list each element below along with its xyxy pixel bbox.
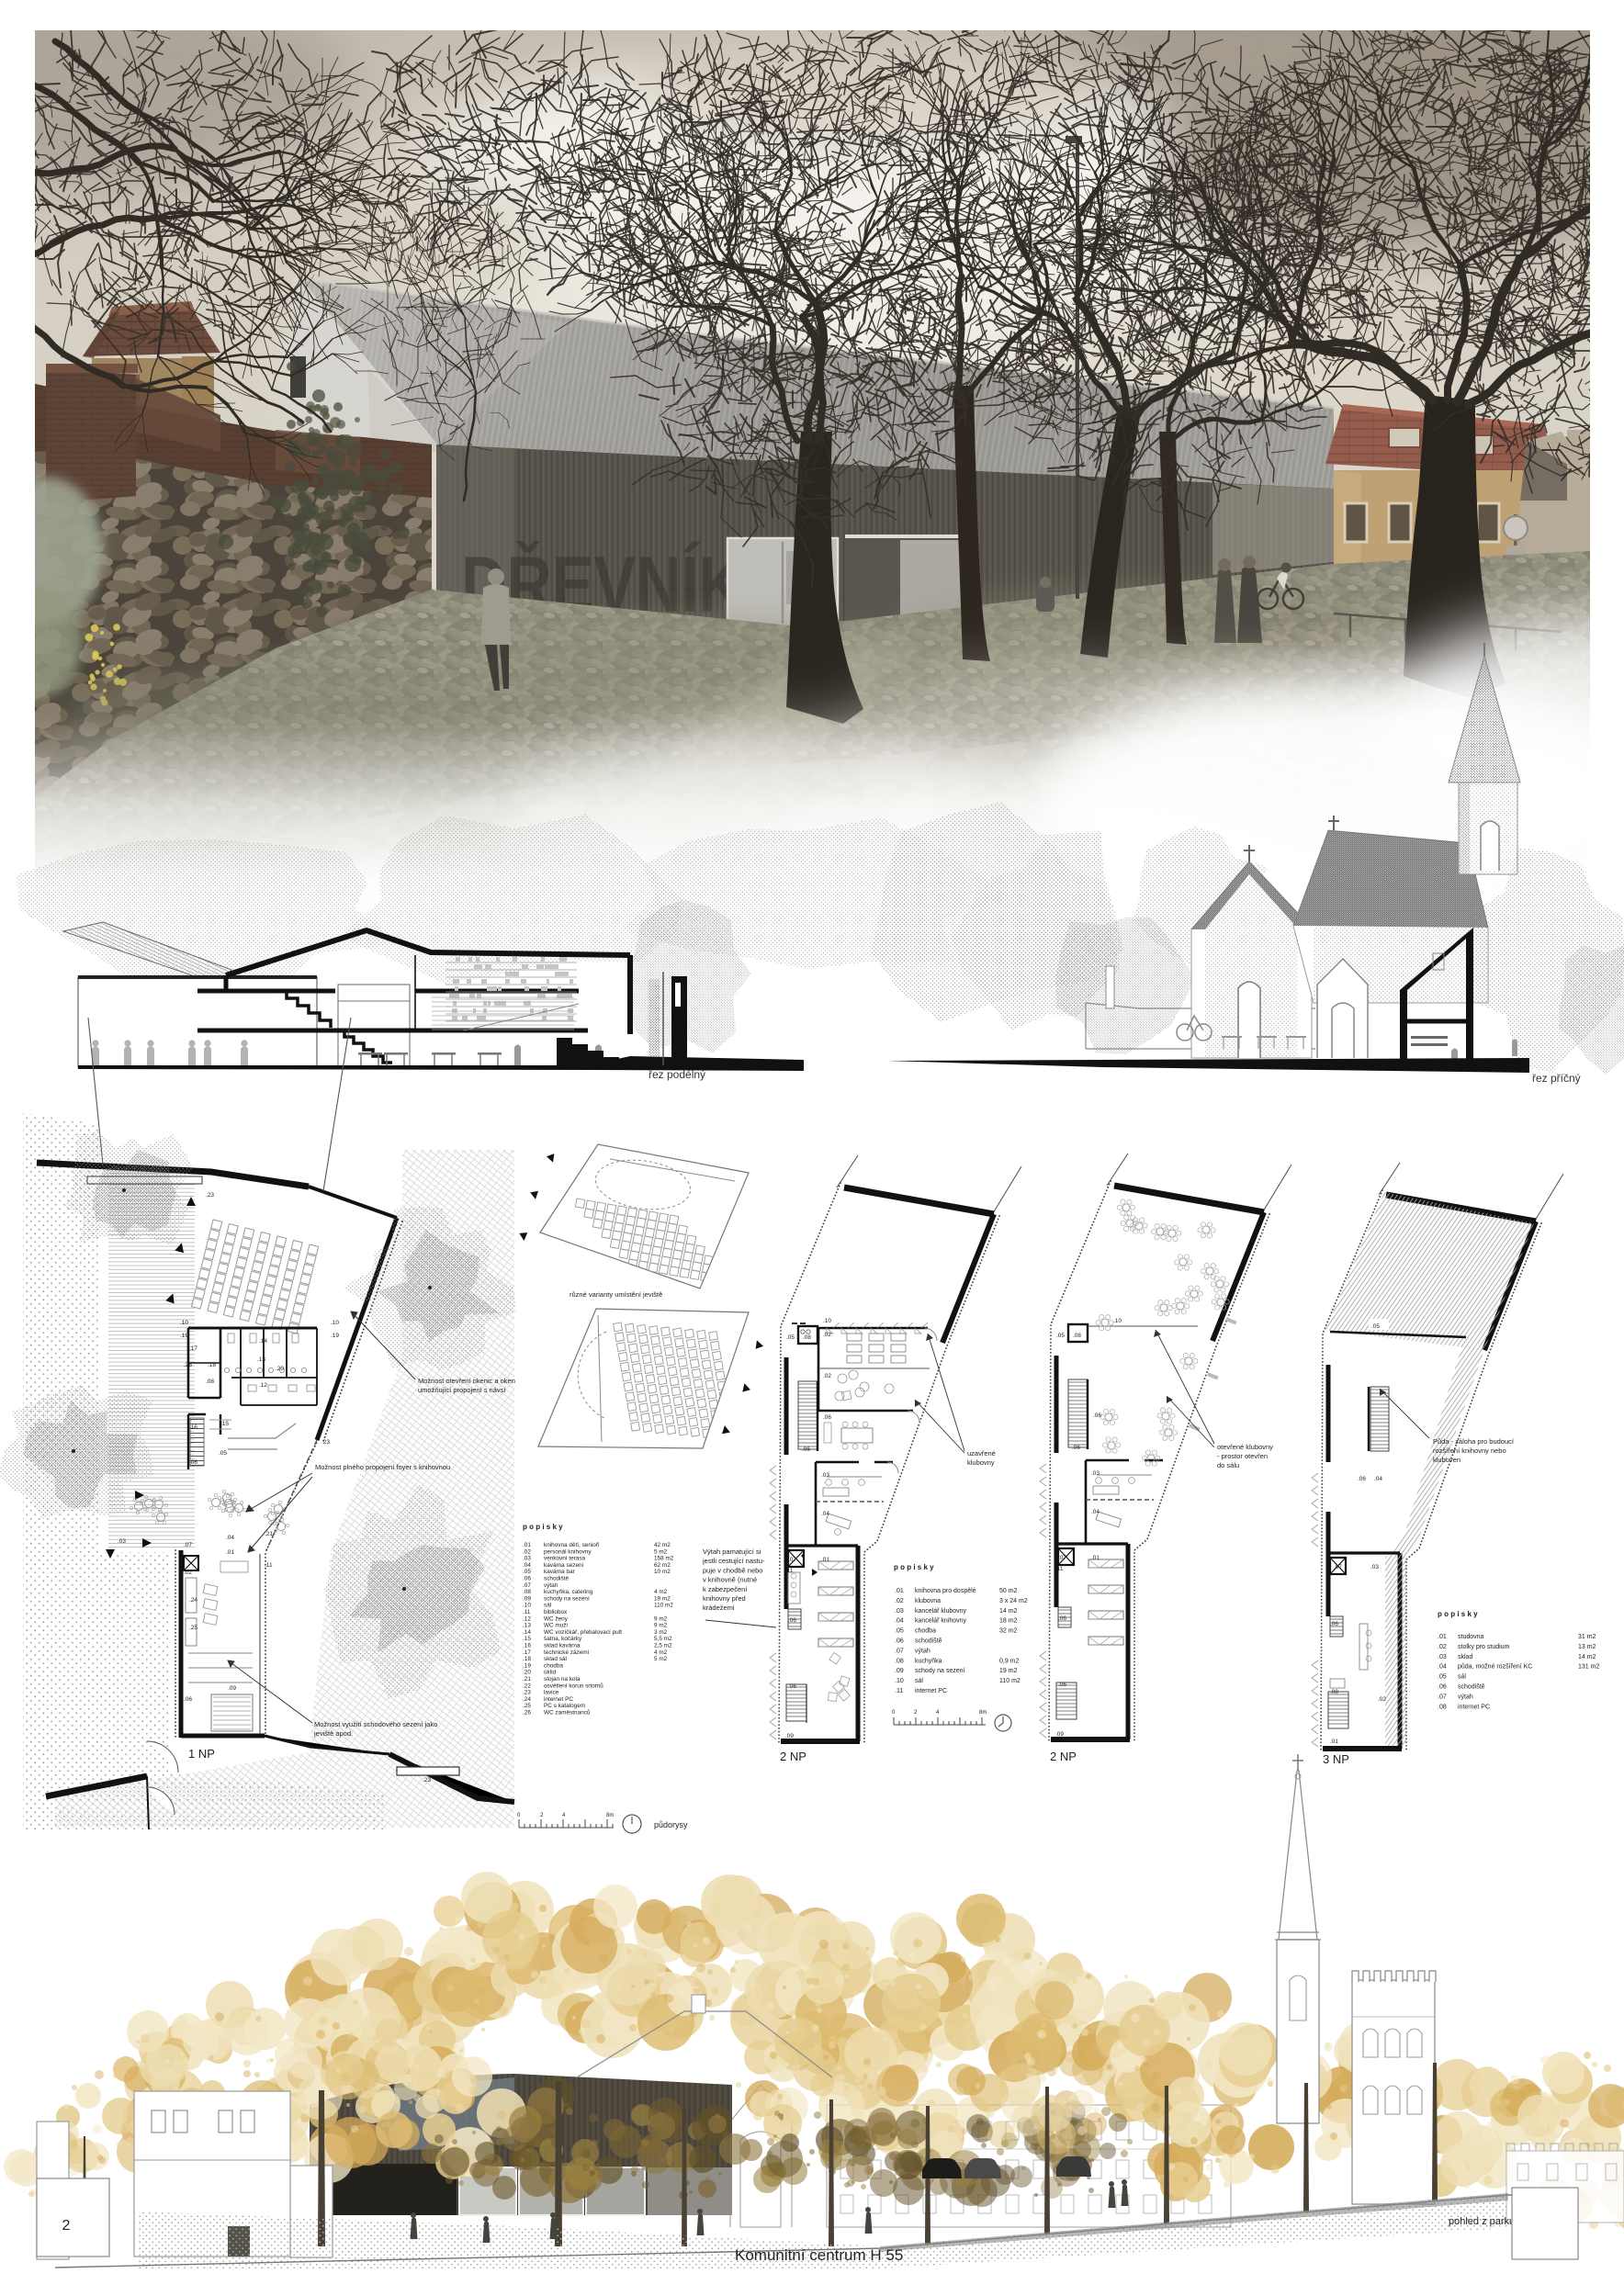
svg-text:klubovny: klubovny <box>967 1458 995 1467</box>
svg-text:kavárna bar: kavárna bar <box>544 1569 576 1575</box>
svg-text:WC zaměstnanců: WC zaměstnanců <box>544 1709 591 1716</box>
svg-text:110 m2: 110 m2 <box>999 1678 1021 1684</box>
svg-text:jestli cestující nastu-: jestli cestující nastu- <box>702 1557 765 1565</box>
svg-text:.16: .16 <box>189 1424 197 1431</box>
svg-text:kuchyňka: kuchyňka <box>915 1658 942 1664</box>
svg-text:knihovna pro dospělé: knihovna pro dospělé <box>915 1588 976 1594</box>
svg-text:Možnost plného propojení foyer: Možnost plného propojení foyer s knihovn… <box>315 1463 450 1471</box>
svg-text:.04: .04 <box>226 1535 234 1541</box>
svg-text:.03: .03 <box>1438 1654 1447 1660</box>
svg-text:2 NP: 2 NP <box>780 1750 806 1763</box>
svg-text:.08: .08 <box>523 1589 531 1595</box>
svg-text:.20: .20 <box>276 1366 284 1372</box>
svg-text:13 m2: 13 m2 <box>1578 1644 1596 1650</box>
svg-text:.12: .12 <box>259 1382 267 1389</box>
svg-text:.06: .06 <box>1058 1615 1066 1622</box>
svg-text:pohled z parku: pohled z parku <box>1449 2216 1515 2227</box>
svg-text:.05: .05 <box>786 1334 795 1341</box>
svg-text:sklad sál: sklad sál <box>544 1656 567 1662</box>
svg-text:schody na sezení: schody na sezení <box>915 1668 965 1674</box>
svg-text:.05: .05 <box>895 1628 904 1635</box>
svg-text:.06: .06 <box>523 1576 531 1582</box>
svg-text:.05: .05 <box>1056 1333 1065 1339</box>
svg-text:do sálu: do sálu <box>1217 1461 1239 1469</box>
svg-text:.19: .19 <box>331 1333 339 1339</box>
svg-text:různé varianty umístění jevišt: různé varianty umístění jeviště <box>570 1290 662 1299</box>
svg-text:šatna, kočárky: šatna, kočárky <box>544 1636 582 1642</box>
svg-text:.02: .02 <box>895 1598 904 1604</box>
svg-text:.23: .23 <box>523 1690 531 1696</box>
svg-text:50 m2: 50 m2 <box>999 1588 1018 1594</box>
svg-text:.03: .03 <box>821 1472 829 1479</box>
svg-text:.14: .14 <box>523 1629 531 1636</box>
svg-text:.09: .09 <box>785 1733 794 1739</box>
svg-text:sklad: sklad <box>1458 1654 1472 1660</box>
svg-text:.03: .03 <box>523 1556 531 1562</box>
svg-text:klubovna: klubovna <box>915 1598 941 1604</box>
svg-text:výtah: výtah <box>544 1582 558 1589</box>
svg-text:půdorysy: půdorysy <box>654 1820 688 1829</box>
svg-text:.06: .06 <box>788 1683 796 1690</box>
svg-text:.21: .21 <box>265 1531 273 1537</box>
svg-text:4 m2: 4 m2 <box>654 1649 668 1656</box>
svg-text:158 m2: 158 m2 <box>654 1556 674 1562</box>
svg-text:.07: .07 <box>1058 1555 1066 1561</box>
svg-text:kavárna sezení: kavárna sezení <box>544 1562 584 1569</box>
svg-text:.05: .05 <box>1371 1323 1380 1330</box>
svg-text:schody na sezení: schody na sezení <box>544 1595 590 1602</box>
svg-text:.06: .06 <box>1093 1412 1101 1419</box>
svg-text:31 m2: 31 m2 <box>1578 1634 1596 1640</box>
svg-text:2: 2 <box>62 2218 71 2234</box>
svg-text:.06: .06 <box>184 1696 192 1703</box>
svg-text:.08: .08 <box>1330 1689 1338 1695</box>
svg-text:.11: .11 <box>785 1568 794 1574</box>
svg-text:.23: .23 <box>206 1192 214 1199</box>
svg-text:.10: .10 <box>331 1320 339 1326</box>
svg-text:.01: .01 <box>226 1549 234 1556</box>
svg-text:.23: .23 <box>321 1439 330 1446</box>
svg-text:9 m2: 9 m2 <box>654 1615 668 1622</box>
svg-text:kluboven: kluboven <box>1433 1456 1460 1464</box>
svg-text:- prostor otevřen: - prostor otevřen <box>1217 1452 1268 1460</box>
svg-text:knihovna dětí, senioři: knihovna dětí, senioři <box>544 1542 599 1548</box>
svg-text:.10: .10 <box>1113 1318 1122 1324</box>
svg-text:.04: .04 <box>1438 1664 1447 1671</box>
svg-text:sál: sál <box>544 1603 551 1609</box>
svg-text:.08: .08 <box>1438 1704 1447 1710</box>
svg-text:5,5 m2: 5,5 m2 <box>654 1636 672 1642</box>
svg-text:.25: .25 <box>189 1625 197 1631</box>
svg-text:.10: .10 <box>823 1318 831 1324</box>
svg-text:.05: .05 <box>523 1569 531 1575</box>
svg-text:internet PC: internet PC <box>544 1696 573 1703</box>
svg-text:.16: .16 <box>523 1643 531 1649</box>
svg-text:.08: .08 <box>206 1379 214 1385</box>
svg-text:výtah: výtah <box>915 1648 930 1654</box>
svg-text:4 m2: 4 m2 <box>654 1589 668 1595</box>
svg-text:.02: .02 <box>1438 1644 1447 1650</box>
svg-text:5 m2: 5 m2 <box>654 1548 668 1555</box>
svg-text:0,9 m2: 0,9 m2 <box>999 1658 1020 1664</box>
svg-text:umožňující propojení s návsí: umožňující propojení s návsí <box>418 1386 506 1394</box>
svg-text:19 m2: 19 m2 <box>654 1595 671 1602</box>
svg-text:.06: .06 <box>1438 1684 1447 1691</box>
svg-text:řez podélný: řez podélný <box>648 1068 705 1081</box>
svg-text:půda, možné rozšíření KC: půda, možné rozšíření KC <box>1458 1663 1532 1671</box>
svg-text:.09: .09 <box>228 1685 236 1692</box>
svg-text:.26: .26 <box>184 1362 192 1368</box>
svg-text:5 m2: 5 m2 <box>654 1656 668 1662</box>
svg-text:.19: .19 <box>180 1333 188 1339</box>
svg-text:3 NP: 3 NP <box>1323 1752 1349 1766</box>
svg-text:rozšíření knihovny nebo: rozšíření knihovny nebo <box>1433 1446 1506 1455</box>
svg-text:.04: .04 <box>821 1511 829 1517</box>
svg-text:.01: .01 <box>1438 1634 1447 1640</box>
svg-text:v knihovně (nutné: v knihovně (nutné <box>703 1576 757 1584</box>
svg-text:uzavřené: uzavřené <box>967 1449 996 1458</box>
svg-text:.11: .11 <box>523 1609 531 1615</box>
svg-text:14 m2: 14 m2 <box>999 1608 1018 1615</box>
svg-text:110 m2: 110 m2 <box>654 1603 673 1609</box>
svg-text:chodba: chodba <box>915 1628 936 1635</box>
svg-text:.20: .20 <box>523 1670 531 1676</box>
svg-text:schodiště: schodiště <box>1458 1684 1485 1691</box>
svg-text:venkovní terasa: venkovní terasa <box>544 1556 586 1562</box>
svg-text:kuchyňka, catering: kuchyňka, catering <box>544 1589 593 1595</box>
svg-text:.07: .07 <box>184 1542 192 1548</box>
svg-text:Komunitní centrum H 55: Komunitní centrum H 55 <box>735 2246 903 2264</box>
svg-text:.26: .26 <box>523 1710 531 1716</box>
svg-text:kancelář knihovny: kancelář knihovny <box>915 1618 967 1625</box>
svg-text:WC ženy: WC ženy <box>544 1615 569 1622</box>
svg-text:.06: .06 <box>823 1414 831 1421</box>
svg-text:.05: .05 <box>219 1450 227 1457</box>
svg-text:.06: .06 <box>788 1617 796 1624</box>
svg-text:.13: .13 <box>523 1623 531 1629</box>
svg-text:2 NP: 2 NP <box>1050 1750 1077 1763</box>
svg-text:18 m2: 18 m2 <box>999 1618 1018 1625</box>
svg-text:.01: .01 <box>821 1557 829 1563</box>
svg-text:řez příčný: řez příčný <box>1532 1072 1581 1085</box>
svg-text:.06: .06 <box>1358 1476 1366 1482</box>
svg-text:3 m2: 3 m2 <box>654 1629 668 1636</box>
svg-text:.01: .01 <box>1091 1555 1100 1561</box>
svg-text:.05: .05 <box>1438 1674 1447 1681</box>
svg-text:.09: .09 <box>1055 1731 1064 1738</box>
svg-text:.01: .01 <box>523 1542 531 1548</box>
svg-text:.02: .02 <box>823 1332 831 1338</box>
svg-text:.08: .08 <box>895 1658 904 1664</box>
svg-text:.10: .10 <box>523 1603 531 1609</box>
svg-text:studovna: studovna <box>1458 1634 1484 1640</box>
svg-text:.24: .24 <box>523 1696 531 1703</box>
svg-text:internet PC: internet PC <box>915 1688 947 1694</box>
svg-text:.17: .17 <box>189 1345 197 1352</box>
svg-text:.03: .03 <box>895 1608 904 1615</box>
svg-text:k zabezpečení: k zabezpečení <box>703 1585 748 1593</box>
svg-text:.19: .19 <box>523 1662 531 1669</box>
svg-text:stojan na kola: stojan na kola <box>544 1676 581 1683</box>
svg-text:schodiště: schodiště <box>915 1638 942 1645</box>
svg-text:otevřené klubovny: otevřené klubovny <box>1217 1443 1273 1451</box>
svg-text:.04: .04 <box>1374 1476 1382 1482</box>
svg-text:schodiště: schodiště <box>544 1576 569 1582</box>
svg-text:kancelář klubovny: kancelář klubovny <box>915 1608 967 1615</box>
svg-text:.11: .11 <box>1055 1566 1064 1572</box>
svg-text:.06: .06 <box>1058 1682 1066 1688</box>
svg-text:knihovny před: knihovny před <box>703 1594 746 1603</box>
svg-text:.02: .02 <box>184 1570 192 1576</box>
svg-text:p o p i s k y: p o p i s k y <box>894 1563 934 1571</box>
svg-text:jeviště apod.: jeviště apod. <box>313 1729 353 1738</box>
svg-text:personál knihovny: personál knihovny <box>544 1548 592 1555</box>
svg-text:bibliobox: bibliobox <box>544 1609 568 1615</box>
svg-text:.07: .07 <box>788 1557 796 1563</box>
svg-text:osvětlení korun srtomů: osvětlení korun srtomů <box>544 1682 603 1689</box>
svg-text:.10: .10 <box>895 1678 904 1684</box>
svg-text:.09: .09 <box>523 1595 531 1602</box>
svg-text:.03: .03 <box>1370 1564 1379 1570</box>
svg-text:WC muži: WC muži <box>544 1623 568 1629</box>
svg-text:.06: .06 <box>189 1459 197 1466</box>
svg-text:.08: .08 <box>803 1334 811 1341</box>
svg-text:.18: .18 <box>523 1656 531 1662</box>
svg-text:sál: sál <box>915 1678 923 1684</box>
svg-text:.07: .07 <box>1334 1564 1342 1570</box>
svg-text:.17: .17 <box>523 1649 531 1656</box>
svg-text:10 m2: 10 m2 <box>654 1569 671 1575</box>
svg-text:stolky pro studium: stolky pro studium <box>1458 1644 1510 1650</box>
svg-text:14 m2: 14 m2 <box>1578 1654 1596 1660</box>
svg-text:.06: .06 <box>1072 1445 1080 1451</box>
svg-text:.18: .18 <box>208 1362 216 1368</box>
svg-text:1 NP: 1 NP <box>188 1747 215 1761</box>
svg-text:.04: .04 <box>523 1562 531 1569</box>
svg-text:sklad kavárna: sklad kavárna <box>544 1643 581 1649</box>
svg-text:lavice: lavice <box>544 1690 559 1696</box>
svg-text:sál: sál <box>1458 1674 1466 1681</box>
svg-text:.23: .23 <box>423 1777 431 1784</box>
svg-text:.11: .11 <box>265 1562 273 1569</box>
svg-text:chodba: chodba <box>544 1662 563 1669</box>
svg-text:Možnost využití schodového sez: Možnost využití schodového sezení jako <box>314 1720 437 1728</box>
svg-text:3 x 24 m2: 3 x 24 m2 <box>999 1598 1028 1604</box>
svg-text:.07: .07 <box>1438 1694 1447 1700</box>
svg-text:.07: .07 <box>523 1582 531 1589</box>
svg-text:.07: .07 <box>895 1648 904 1654</box>
svg-text:.01: .01 <box>895 1588 904 1594</box>
svg-text:.25: .25 <box>523 1703 531 1709</box>
svg-text:.12: .12 <box>523 1615 531 1622</box>
svg-text:.06: .06 <box>895 1638 904 1645</box>
svg-text:úklid: úklid <box>544 1670 557 1676</box>
svg-text:.21: .21 <box>523 1676 531 1683</box>
svg-text:.06: .06 <box>1330 1621 1338 1627</box>
svg-text:PC s katalogem: PC s katalogem <box>544 1703 585 1709</box>
svg-text:Půda - záloha pro budoucí: Půda - záloha pro budoucí <box>1433 1437 1515 1446</box>
svg-text:.04: .04 <box>895 1618 904 1625</box>
svg-text:.13: .13 <box>257 1356 265 1363</box>
svg-text:.04: .04 <box>1091 1509 1100 1515</box>
svg-text:42 m2: 42 m2 <box>654 1542 671 1548</box>
svg-text:WC vozíčkář, přebalovací pult: WC vozíčkář, přebalovací pult <box>544 1629 622 1636</box>
svg-text:.14: .14 <box>259 1338 267 1345</box>
svg-text:19 m2: 19 m2 <box>999 1668 1018 1674</box>
svg-text:.02: .02 <box>523 1548 531 1555</box>
svg-text:Možnost otevření okenic a oken: Možnost otevření okenic a oken <box>418 1377 515 1385</box>
svg-text:výtah: výtah <box>1458 1694 1473 1700</box>
svg-text:krádežemi: krádežemi <box>703 1604 735 1612</box>
svg-text:Výtah pamatující si: Výtah pamatující si <box>703 1548 761 1556</box>
svg-text:.01: .01 <box>1330 1739 1338 1745</box>
svg-text:.03: .03 <box>1091 1470 1100 1477</box>
svg-text:.02: .02 <box>1378 1696 1386 1703</box>
svg-text:.15: .15 <box>523 1636 531 1642</box>
svg-text:.08: .08 <box>1073 1333 1081 1339</box>
svg-text:131 m2: 131 m2 <box>1578 1664 1599 1671</box>
svg-text:.03: .03 <box>118 1538 126 1545</box>
svg-text:p o p i s k y: p o p i s k y <box>523 1523 563 1531</box>
svg-text:.10: .10 <box>180 1320 188 1326</box>
svg-text:62 m2: 62 m2 <box>654 1562 671 1569</box>
svg-text:p o p i s k y: p o p i s k y <box>1438 1610 1478 1618</box>
svg-text:32 m2: 32 m2 <box>999 1628 1018 1635</box>
svg-text:.02: .02 <box>823 1373 831 1379</box>
svg-text:8m: 8m <box>979 1710 987 1716</box>
svg-text:puje v chodbě nebo: puje v chodbě nebo <box>703 1566 762 1574</box>
svg-text:.15: .15 <box>220 1421 229 1427</box>
svg-text:.11: .11 <box>895 1688 903 1694</box>
svg-text:.09: .09 <box>895 1668 904 1674</box>
svg-text:2,5 m2: 2,5 m2 <box>654 1643 672 1649</box>
svg-text:.22: .22 <box>523 1683 531 1689</box>
svg-text:9 m2: 9 m2 <box>654 1623 668 1629</box>
svg-text:8m: 8m <box>606 1813 614 1818</box>
svg-text:technické zázemí: technické zázemí <box>544 1649 590 1656</box>
svg-text:internet PC: internet PC <box>1458 1704 1490 1710</box>
svg-text:.24: .24 <box>189 1597 197 1604</box>
svg-text:.06: .06 <box>802 1446 810 1453</box>
